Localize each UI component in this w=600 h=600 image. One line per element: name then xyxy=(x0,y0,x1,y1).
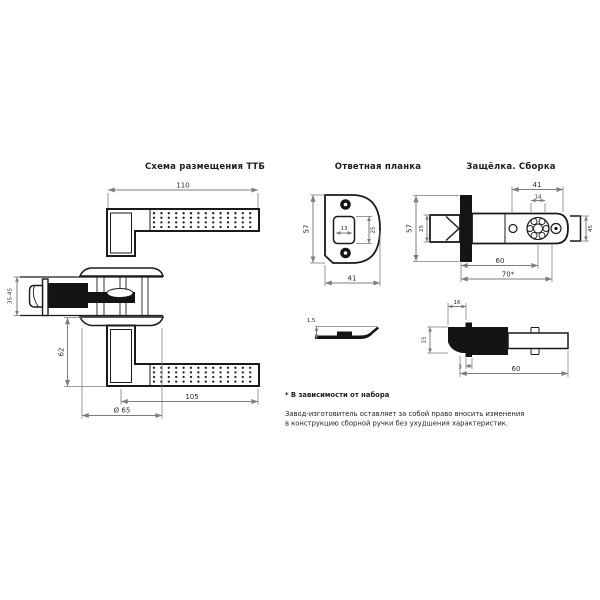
latch-body xyxy=(472,214,568,244)
latch-bolt xyxy=(30,286,43,308)
view-latch-profile: 16 15 3 60 xyxy=(422,300,569,377)
latch-case xyxy=(47,283,88,308)
strike-plate-dimple xyxy=(337,332,352,336)
latch-bolt-side xyxy=(430,215,460,242)
dim-bolt-height: 25 xyxy=(419,225,425,232)
disclaimer-line-2: в конструкцию сборной ручки без ухудшени… xyxy=(285,420,508,428)
dim-bolt-profile-height: 15 xyxy=(422,336,428,343)
view-title-strike-plate: Ответная планка xyxy=(335,162,422,172)
view-strike-plate-face: Ответная планка 57 41 13 25 xyxy=(303,162,422,286)
dim-hub-height: 45 xyxy=(588,225,594,232)
dim-bolt-width: 16 xyxy=(454,300,461,306)
dim-latch-length: 60 xyxy=(512,365,521,373)
dim-case-length: 41 xyxy=(533,181,542,189)
dim-lever-length: 110 xyxy=(176,182,189,190)
dim-door-thickness: 35-45 xyxy=(8,288,14,304)
view-latch-assembly: Защёлка. Сборка 57 25 xyxy=(406,161,595,282)
dim-bend-height: 1,5 xyxy=(307,318,316,324)
technical-drawing-canvas: Схема размещения ТТБ 110 xyxy=(0,0,600,600)
view-strike-plate-profile: 1,5 xyxy=(307,318,379,339)
latch-faceplate xyxy=(460,195,472,262)
dim-plate-width: 41 xyxy=(348,275,357,283)
dim-hub-width: 14 xyxy=(535,195,542,201)
dim-faceplate-height: 57 xyxy=(406,224,414,233)
dim-opening-height: 25 xyxy=(371,226,377,233)
drawing-sheet: Схема размещения ТТБ 110 xyxy=(0,0,600,600)
view-title-latch-assembly: Защёлка. Сборка xyxy=(466,161,556,172)
dim-plate-height: 57 xyxy=(303,225,311,234)
faceplate xyxy=(43,279,49,316)
disclaimer-line-1: Завод-изготовитель оставляет за собой пр… xyxy=(285,410,524,418)
dim-handle-height: 62 xyxy=(58,348,66,357)
mounting-bracket xyxy=(570,216,581,241)
latch-tube-profile xyxy=(508,333,568,349)
dim-backset-alt: 70* xyxy=(502,271,515,279)
dim-lever-reach: 105 xyxy=(185,393,198,401)
footnote-text: * В зависимости от набора xyxy=(285,391,390,399)
notes-block: * В зависимости от набора Завод-изготови… xyxy=(285,391,524,428)
dim-rose-diameter: Ø 65 xyxy=(114,407,131,415)
dim-opening-width: 13 xyxy=(341,226,348,232)
faceplate-profile xyxy=(466,323,473,358)
dim-backset-main: 60 xyxy=(496,257,505,265)
latch-case-profile xyxy=(472,327,508,355)
view-title-handle: Схема размещения ТТБ xyxy=(145,162,265,172)
view-handle-top: Схема размещения ТТБ 110 xyxy=(8,162,266,419)
